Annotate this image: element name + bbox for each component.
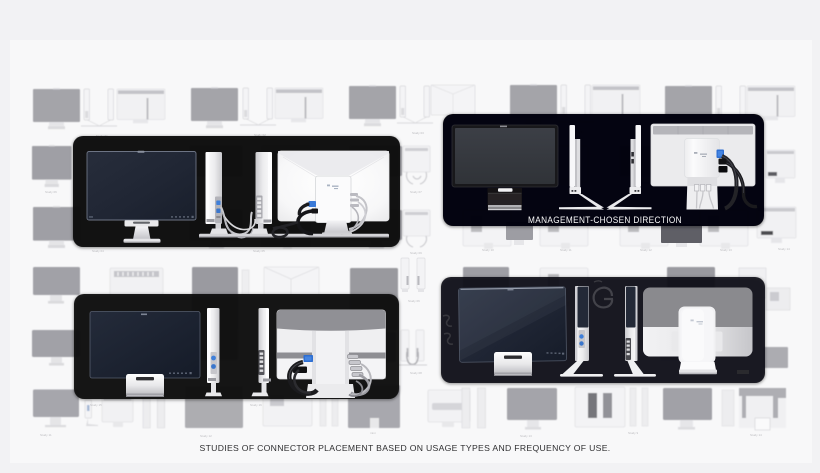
svg-text:Study 03: Study 03	[412, 131, 424, 135]
svg-text:Study 9: Study 9	[628, 431, 639, 435]
svg-text:Study 04: Study 04	[92, 249, 104, 253]
svg-text:MANAGEMENT-CHOSEN DIRECTION: MANAGEMENT-CHOSEN DIRECTION	[528, 215, 682, 225]
svg-text:Study 13: Study 13	[520, 434, 532, 438]
svg-text:Study 15: Study 15	[90, 403, 102, 407]
svg-text:Study 08: Study 08	[410, 371, 422, 375]
svg-text:Study 13: Study 13	[720, 248, 732, 252]
svg-text:Study 06: Study 06	[45, 190, 57, 194]
svg-text:Study 11: Study 11	[560, 248, 572, 252]
svg-text:Study 12: Study 12	[200, 434, 212, 438]
svg-text:Study 14: Study 14	[750, 433, 762, 437]
svg-text:mini: mini	[370, 431, 376, 435]
svg-text:Study 09: Study 09	[410, 251, 422, 255]
svg-text:STUDIES OF CONNECTOR PLACEMENT: STUDIES OF CONNECTOR PLACEMENT BASED ON …	[200, 444, 611, 453]
svg-text:Study 12: Study 12	[640, 248, 652, 252]
svg-text:Study 11: Study 11	[40, 433, 52, 437]
svg-text:Study 14: Study 14	[778, 247, 790, 251]
svg-text:Study 16: Study 16	[250, 403, 262, 407]
svg-text:Study 07: Study 07	[410, 190, 422, 194]
svg-text:Study 10: Study 10	[482, 248, 494, 252]
svg-text:Study 05: Study 05	[253, 249, 265, 253]
svg-text:Study 06: Study 06	[408, 299, 420, 303]
